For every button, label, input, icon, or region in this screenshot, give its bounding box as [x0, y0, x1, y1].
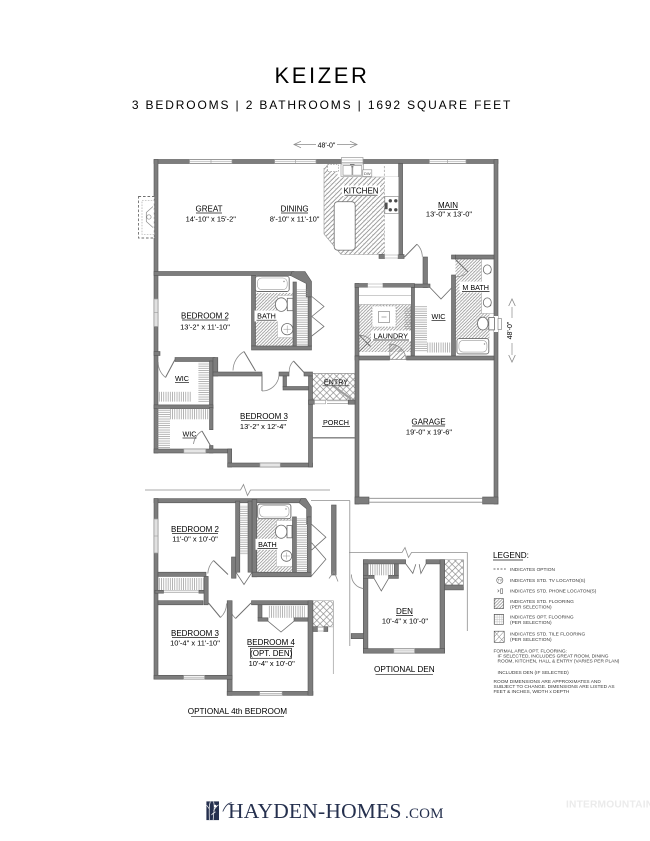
- svg-text:INDICATES STD. PHONE LOCATON(S: INDICATES STD. PHONE LOCATON(S): [510, 589, 597, 595]
- svg-text:INDICATES OPT. FLOORING: INDICATES OPT. FLOORING: [510, 615, 574, 621]
- svg-text:.COM: .COM: [405, 806, 444, 822]
- svg-text:IF SELECTED, INCLUDES GREAT RO: IF SELECTED, INCLUDES GREAT ROOM, DINING: [498, 654, 609, 660]
- svg-text:DINING: DINING: [281, 205, 309, 214]
- svg-text:FORMAL AREA OPT. FLOORING:: FORMAL AREA OPT. FLOORING:: [494, 649, 567, 655]
- svg-text:WIC: WIC: [175, 374, 189, 383]
- svg-text:BEDROOM 3: BEDROOM 3: [240, 412, 289, 421]
- svg-text:OPTIONAL 4th BEDROOM: OPTIONAL 4th BEDROOM: [188, 707, 288, 716]
- svg-text:SUBJECT TO CHANGE. DIMENSIONS: SUBJECT TO CHANGE. DIMENSIONS ARE LISTED…: [494, 684, 615, 690]
- svg-text:LEGEND:: LEGEND:: [493, 551, 529, 560]
- svg-text:(OPT. DEN): (OPT. DEN): [250, 649, 293, 658]
- svg-text:11'-0" x 10'-0": 11'-0" x 10'-0": [172, 535, 218, 544]
- svg-text:FEET & INCHES, WIDTH x DEPTH: FEET & INCHES, WIDTH x DEPTH: [494, 689, 570, 695]
- svg-text:DEN: DEN: [396, 607, 413, 616]
- svg-text:BATH: BATH: [258, 540, 277, 549]
- svg-text:13'-0" x 13'-0": 13'-0" x 13'-0": [426, 210, 472, 219]
- svg-text:13'-2" x 12'-4": 13'-2" x 12'-4": [240, 422, 286, 431]
- svg-text:INDICATES OPTION: INDICATES OPTION: [510, 567, 555, 573]
- svg-text:PORCH: PORCH: [323, 418, 349, 427]
- svg-text:TV: TV: [498, 579, 503, 583]
- svg-text:KITCHEN: KITCHEN: [343, 187, 378, 196]
- svg-text:WIC: WIC: [432, 312, 446, 321]
- svg-text:INDICATES STD. FLOORING: INDICATES STD. FLOORING: [510, 599, 574, 605]
- svg-text:M BATH: M BATH: [462, 283, 489, 292]
- svg-text:WIC: WIC: [183, 430, 197, 439]
- svg-text:GARAGE: GARAGE: [411, 418, 445, 427]
- svg-text:13'-2" x 11'-10": 13'-2" x 11'-10": [180, 323, 230, 332]
- svg-text:BEDROOM 3: BEDROOM 3: [171, 629, 220, 638]
- svg-text:INDICATES STD. TV LOCATON(S): INDICATES STD. TV LOCATON(S): [510, 578, 586, 584]
- svg-text:48'-0": 48'-0": [318, 142, 336, 149]
- svg-text:BEDROOM 4: BEDROOM 4: [247, 638, 296, 647]
- svg-text:8'-10" x 11'-10": 8'-10" x 11'-10": [270, 215, 320, 224]
- svg-text:OPTIONAL DEN: OPTIONAL DEN: [374, 665, 435, 674]
- svg-text:BEDROOM 2: BEDROOM 2: [171, 525, 220, 534]
- svg-text:ENTRY: ENTRY: [324, 377, 348, 386]
- svg-text:INCLUDES DEN (IF SELECTED): INCLUDES DEN (IF SELECTED): [498, 670, 570, 676]
- svg-text:14'-10" x 15'-2": 14'-10" x 15'-2": [186, 215, 237, 224]
- svg-text:KEIZER: KEIZER: [274, 63, 369, 88]
- svg-text:HAYDEN-HOMES: HAYDEN-HOMES: [228, 799, 402, 823]
- svg-text:48'-0": 48'-0": [507, 321, 514, 339]
- svg-text:ROOM, KITCHEN, HALL & ENTRY (V: ROOM, KITCHEN, HALL & ENTRY (VARIES PER …: [498, 659, 620, 665]
- svg-text:GREAT: GREAT: [196, 205, 223, 214]
- svg-text:(PER SELECTION): (PER SELECTION): [510, 620, 552, 626]
- svg-text:DW: DW: [364, 171, 371, 176]
- svg-text:INDICATES STD. TILE FLOORING: INDICATES STD. TILE FLOORING: [510, 632, 586, 638]
- svg-text:BATH: BATH: [257, 312, 276, 321]
- svg-text:10'-4" x 10'-0": 10'-4" x 10'-0": [382, 617, 428, 626]
- svg-text:10'-4" x 10'-0": 10'-4" x 10'-0": [249, 659, 295, 668]
- svg-text:(PER SELECTION): (PER SELECTION): [510, 604, 552, 610]
- svg-text:LAUNDRY: LAUNDRY: [374, 332, 408, 341]
- svg-text:INTERMOUNTAIN: INTERMOUNTAIN: [566, 800, 650, 811]
- svg-text:BEDROOM 2: BEDROOM 2: [181, 312, 230, 321]
- svg-text:(PER SELECTION): (PER SELECTION): [510, 637, 552, 643]
- svg-text:10'-4" x 11'-10": 10'-4" x 11'-10": [170, 639, 220, 648]
- svg-text:3 BEDROOMS | 2 BATHROOMS | 169: 3 BEDROOMS | 2 BATHROOMS | 1692 SQUARE F…: [132, 98, 512, 112]
- svg-text:ROOM DIMENSIONS ARE APPROXIMAT: ROOM DIMENSIONS ARE APPROXIMATES AND: [494, 679, 602, 685]
- svg-text:19'-0" x 19'-6": 19'-0" x 19'-6": [406, 428, 452, 437]
